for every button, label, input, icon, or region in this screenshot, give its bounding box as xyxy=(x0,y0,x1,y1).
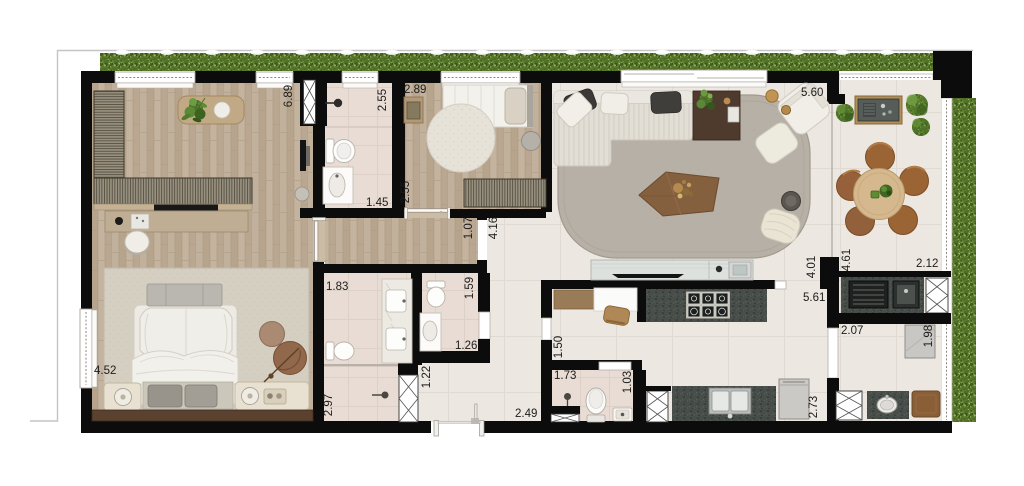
svg-text:1.45: 1.45 xyxy=(366,197,388,209)
svg-text:2.97: 2.97 xyxy=(323,394,335,416)
svg-text:2.49: 2.49 xyxy=(515,408,537,420)
svg-text:1.73: 1.73 xyxy=(554,370,576,382)
svg-text:6.89: 6.89 xyxy=(283,85,295,107)
svg-text:5.60: 5.60 xyxy=(801,87,823,99)
svg-text:4.52: 4.52 xyxy=(94,365,116,377)
svg-text:2.55: 2.55 xyxy=(400,181,412,203)
svg-text:5.61: 5.61 xyxy=(803,292,825,304)
svg-text:1.26: 1.26 xyxy=(455,340,477,352)
svg-text:1.03: 1.03 xyxy=(622,371,634,393)
svg-text:1.59: 1.59 xyxy=(464,277,476,299)
svg-text:1.83: 1.83 xyxy=(326,281,348,293)
svg-text:1.07: 1.07 xyxy=(463,217,475,239)
svg-text:4.16: 4.16 xyxy=(488,217,500,239)
svg-text:2.89: 2.89 xyxy=(404,84,426,96)
svg-text:1.50: 1.50 xyxy=(553,336,565,358)
svg-text:4.61: 4.61 xyxy=(841,249,853,271)
svg-text:2.55: 2.55 xyxy=(377,89,389,111)
svg-text:1.22: 1.22 xyxy=(421,366,433,388)
svg-text:2.12: 2.12 xyxy=(916,258,938,270)
svg-text:4.01: 4.01 xyxy=(806,256,818,278)
svg-text:2.07: 2.07 xyxy=(841,325,863,337)
svg-text:2.73: 2.73 xyxy=(808,396,820,418)
svg-text:1.98: 1.98 xyxy=(923,325,935,347)
